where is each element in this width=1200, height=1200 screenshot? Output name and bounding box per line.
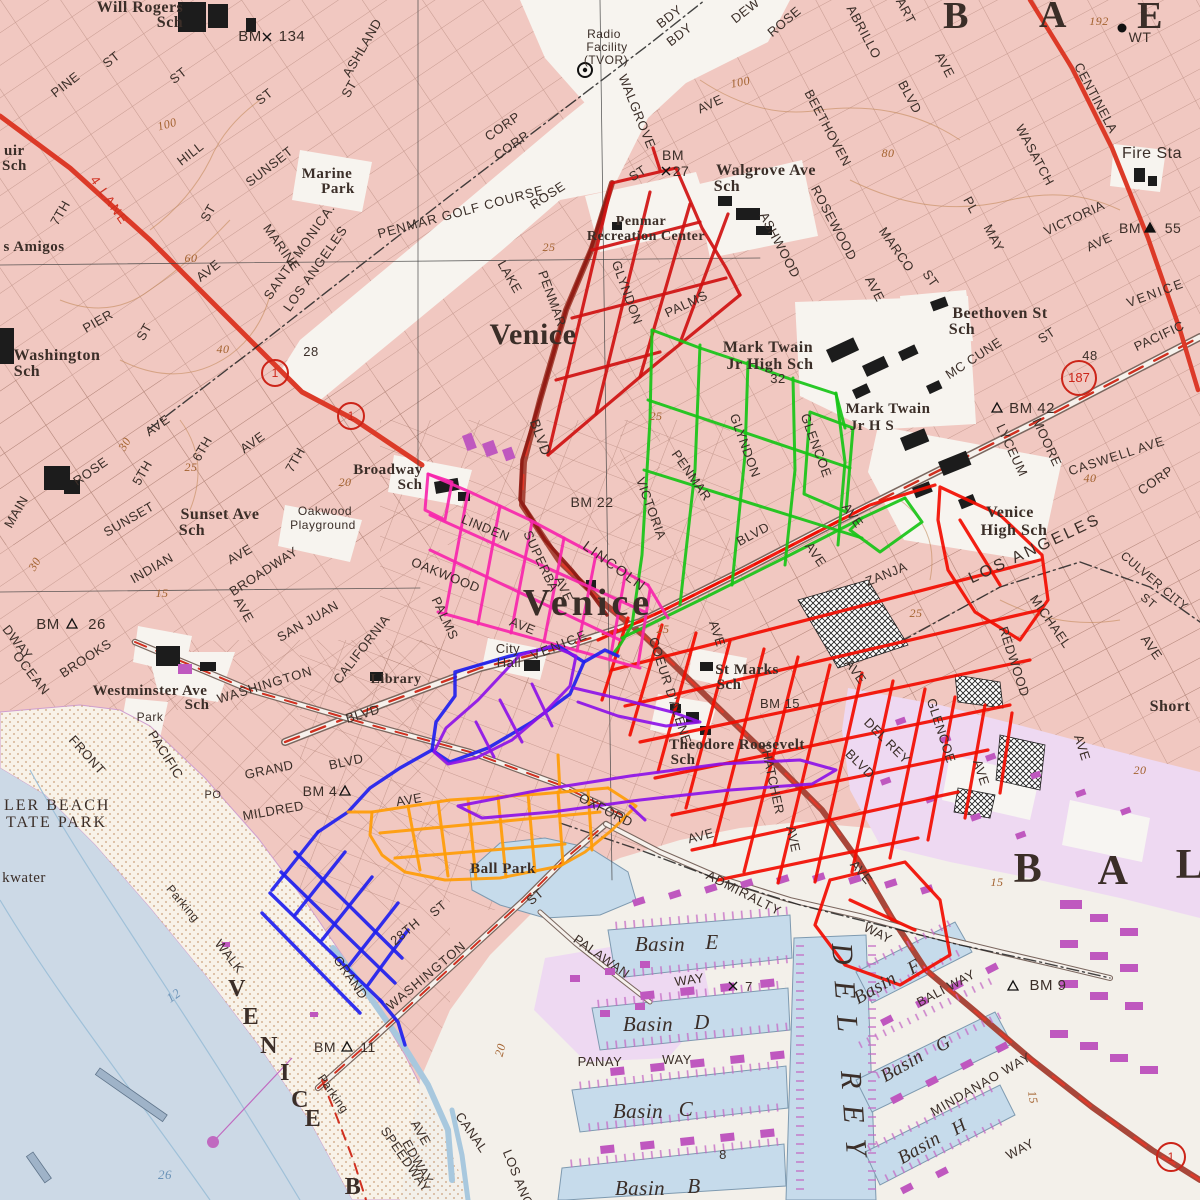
- marina-building: [1110, 1054, 1128, 1062]
- map-label: A: [1039, 0, 1067, 36]
- marina-building: [178, 664, 192, 674]
- map-label: Playground: [290, 518, 356, 532]
- map-label: Mark Twain: [846, 401, 931, 417]
- route-shield-number: 1: [348, 409, 355, 423]
- map-label: Short: [1150, 698, 1191, 715]
- map-label: Park: [137, 710, 164, 724]
- map-label: 80: [882, 146, 895, 160]
- map-label: Basin: [635, 932, 685, 956]
- map-label: Ball Park: [470, 861, 536, 877]
- dock-tick-strip: [796, 945, 804, 1195]
- map-label: Jr H S: [850, 418, 894, 434]
- map-label: PANAY: [578, 1054, 623, 1069]
- marina-building: [1080, 1042, 1098, 1050]
- marina-building: [1120, 928, 1138, 936]
- map-label: 25: [543, 240, 556, 254]
- map-label: Sch: [14, 363, 40, 380]
- map-label: Library: [371, 672, 422, 687]
- map-label: BM 9: [1029, 977, 1066, 994]
- building: [700, 662, 713, 671]
- map-label: 25: [657, 622, 670, 636]
- map-label: uir: [4, 143, 25, 159]
- map-label: (TVOR): [584, 53, 628, 67]
- map-label: C: [679, 1097, 694, 1121]
- map-label: Sch: [949, 321, 975, 338]
- map-label: 28: [303, 344, 318, 359]
- map-label: 15: [1025, 1090, 1041, 1105]
- map-label: 25: [650, 409, 663, 423]
- map-label: A: [1098, 848, 1129, 894]
- map-label: Sch: [398, 477, 423, 493]
- map-label: N: [260, 1033, 278, 1059]
- map-label: BM: [662, 147, 684, 163]
- map-label: Sch: [185, 697, 210, 713]
- map-label: s Amigos: [3, 239, 64, 255]
- map-label: kwater: [2, 870, 46, 886]
- map-label: 55: [1165, 220, 1182, 236]
- marina-building: [635, 1003, 645, 1010]
- marina-building: [1120, 964, 1138, 972]
- map-label: Sunset Ave: [181, 506, 260, 523]
- map-label: Sch: [671, 752, 696, 768]
- map-label: Mark Twain: [723, 339, 813, 356]
- map-label: Radio: [587, 27, 621, 41]
- map-label: WT: [1129, 29, 1152, 45]
- map-label: High Sch: [981, 522, 1048, 539]
- map-label: Basin: [615, 1176, 665, 1200]
- map-label: WAY: [662, 1052, 692, 1067]
- map-label: 40: [217, 342, 230, 356]
- map-label: Washington: [14, 347, 101, 364]
- map-label: Penmar: [616, 214, 666, 229]
- map-label: B: [687, 1174, 700, 1198]
- map-label: 20: [1134, 763, 1147, 777]
- map-label: 15: [991, 875, 1004, 889]
- map-label: 26: [158, 1167, 172, 1182]
- marina-building: [1140, 1066, 1158, 1074]
- map-label: 27: [673, 163, 690, 179]
- map-label: 60: [185, 251, 198, 265]
- marina-building: [640, 1141, 655, 1150]
- marina-building: [600, 1145, 615, 1154]
- map-label: 8: [719, 1147, 727, 1162]
- marina-building: [1060, 900, 1082, 909]
- map-label: BM: [1119, 220, 1141, 236]
- map-label: L: [1176, 842, 1200, 888]
- map-label: 26: [88, 616, 106, 633]
- building: [156, 646, 180, 666]
- marina-building: [730, 1055, 745, 1064]
- marina-building: [1090, 992, 1108, 1000]
- building: [0, 328, 14, 364]
- map-label: Sch: [157, 14, 183, 31]
- map-label: City: [496, 641, 520, 656]
- marina-building: [640, 991, 655, 1000]
- map-dot: [1118, 24, 1127, 33]
- map-label: Venice: [986, 504, 1034, 521]
- building: [200, 662, 216, 671]
- map-label: Beethoven St: [952, 305, 1048, 322]
- map-label: 20: [339, 475, 352, 489]
- map-label: B: [1014, 846, 1043, 892]
- marina-building: [760, 1129, 775, 1138]
- map-label: Sch: [179, 522, 205, 539]
- map-label: 7: [745, 979, 753, 994]
- map-label: Basin: [613, 1099, 663, 1123]
- map-label: I: [280, 1060, 290, 1086]
- map-label: Sch: [717, 677, 742, 693]
- route-shield-number: 1: [272, 366, 279, 380]
- marina-building: [600, 1010, 610, 1017]
- map-label: 11: [360, 1039, 376, 1055]
- building: [1134, 168, 1145, 182]
- marina-building: [1090, 914, 1108, 922]
- map-label: St Marks: [715, 662, 779, 678]
- map-label: Walgrove Ave: [716, 162, 816, 179]
- marina-building: [770, 1051, 785, 1060]
- marina-building: [1050, 1030, 1068, 1038]
- map-label: 32: [770, 371, 785, 386]
- map-label: BM 15: [760, 696, 800, 711]
- map-label: BM 4: [303, 783, 338, 799]
- building: [1148, 176, 1157, 186]
- building: [208, 4, 228, 28]
- map-label: Park: [321, 181, 355, 197]
- marina-building: [690, 1059, 705, 1068]
- map-label: Marine: [302, 166, 352, 182]
- map-label: BM: [36, 616, 60, 633]
- marina-building: [1125, 1002, 1143, 1010]
- map-label: E: [305, 1106, 322, 1132]
- map-dot: [583, 68, 587, 72]
- map-label: D: [693, 1010, 710, 1034]
- marina-building: [1090, 952, 1108, 960]
- route-shield-number: 1: [1168, 1150, 1175, 1164]
- building: [718, 196, 732, 206]
- building: [736, 208, 760, 220]
- route-shield-number: 187: [1068, 370, 1090, 385]
- map-label: Broadway: [353, 462, 423, 478]
- topo-map[interactable]: 111871 VeniceVeniceBAEBALVENICEBDEL REYW…: [0, 0, 1200, 1200]
- marina-building: [640, 961, 650, 968]
- map-label: BM: [238, 28, 262, 45]
- map-label: Sch: [714, 178, 740, 195]
- map-label: B: [943, 0, 969, 37]
- map-label: 25: [910, 606, 923, 620]
- map-label: BM 42: [1009, 400, 1055, 417]
- marina-building: [570, 975, 580, 982]
- map-label: 48: [1082, 348, 1097, 363]
- marina-building: [310, 1012, 318, 1017]
- map-label: Fire Sta: [1122, 145, 1182, 162]
- map-label: E: [243, 1004, 260, 1030]
- map-label: TATE PARK: [6, 814, 107, 831]
- marina-building: [1060, 940, 1078, 948]
- map-label: Facility: [586, 40, 627, 54]
- marina-building: [720, 1133, 735, 1142]
- map-label: PO: [205, 789, 222, 801]
- map-label: Hall: [497, 655, 521, 670]
- map-label: Recreation Center: [587, 229, 705, 244]
- marina-building: [760, 979, 775, 988]
- map-label: 134: [279, 28, 306, 45]
- map-label: 192: [1089, 14, 1109, 28]
- map-label: Basin: [623, 1012, 673, 1036]
- map-label: Sch: [2, 158, 27, 174]
- map-label: E: [704, 930, 718, 954]
- map-label: Oakwood: [298, 504, 352, 518]
- map-label: V: [228, 976, 246, 1002]
- map-label: BM: [314, 1039, 336, 1055]
- map-viewport[interactable]: 111871 VeniceVeniceBAEBALVENICEBDEL REYW…: [0, 0, 1200, 1200]
- map-label: B: [345, 1174, 362, 1200]
- map-label: BM 22: [571, 494, 614, 510]
- map-label: 15: [156, 586, 169, 600]
- map-label: 25: [185, 460, 198, 474]
- map-label: LER BEACH: [4, 797, 110, 814]
- marina-building: [680, 1137, 695, 1146]
